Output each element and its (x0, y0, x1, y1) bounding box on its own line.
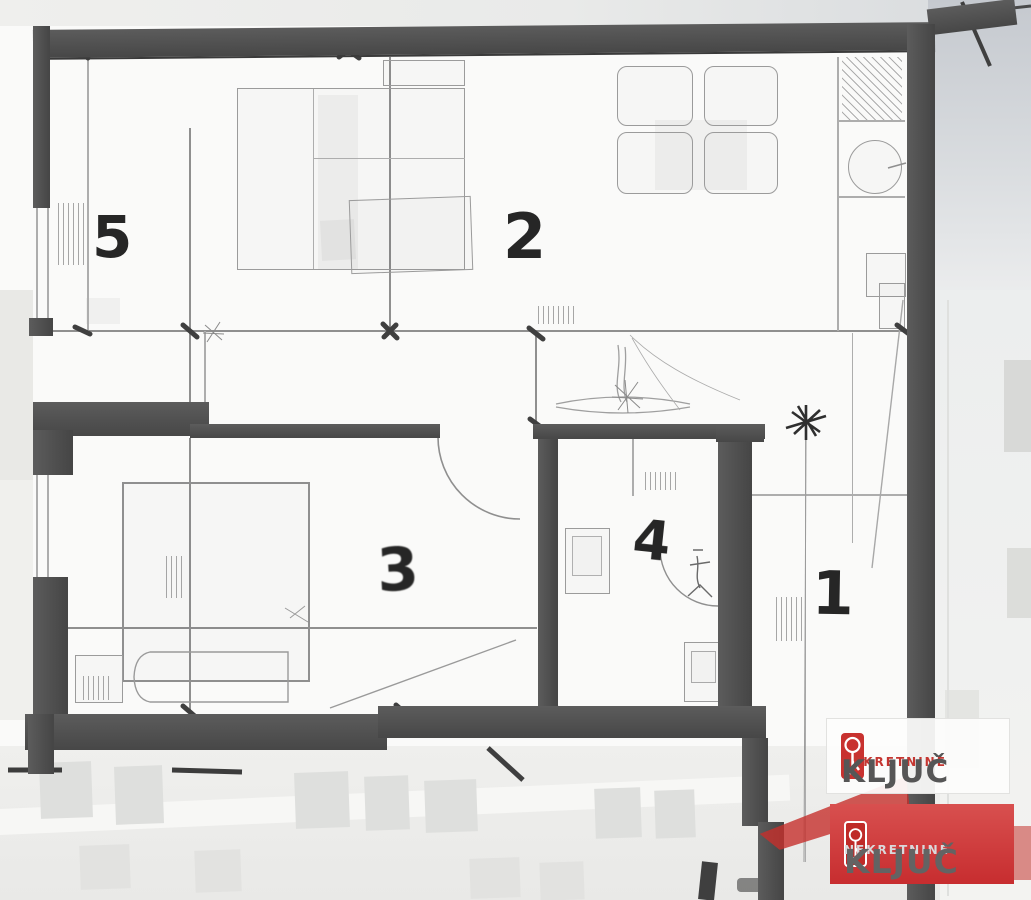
door-arc (438, 437, 520, 519)
wall-left-upper (33, 26, 50, 208)
wall-left-lower (33, 577, 68, 714)
wall-room4-right (718, 442, 752, 714)
figure-sketch (688, 550, 712, 597)
bathtub-outline (134, 652, 288, 702)
wall-entry-upper (742, 738, 768, 826)
room-number-3: 3 (375, 539, 420, 601)
brand-name: KLJUČ (841, 757, 949, 788)
wall-left-knot (29, 318, 53, 336)
diagonal-line (872, 300, 903, 568)
wall-room4-left (538, 439, 558, 715)
floor-plan-image: 5 2 3 4 1 NEKRETNINE KLJUČ NEKRETNINE KL… (0, 0, 1031, 900)
scratch-marks (203, 322, 224, 342)
wall-bottom-stub (28, 714, 54, 774)
diagonal-line (330, 640, 516, 708)
junction-knots (72, 42, 928, 720)
room-number-2: 2 (503, 206, 546, 268)
wall-left-step (33, 430, 73, 475)
wall-end-tick (488, 748, 523, 780)
wall-room4-corner (716, 424, 764, 442)
scratch-marks (285, 606, 308, 622)
wall-bottom-left (25, 714, 387, 750)
room-number-5: 5 (92, 208, 132, 266)
sink-tick (888, 163, 906, 168)
wall-bottom-right (378, 706, 766, 738)
wall-divider-room3 (190, 424, 440, 438)
red-streak (1012, 826, 1031, 880)
scratch-wisps (630, 335, 740, 410)
watermark-logo-primary: NEKRETNINE KLJUČ (826, 718, 1010, 794)
watermark-logo-secondary: NEKRETNINE KLJUČ (830, 804, 1014, 884)
plant-icon (786, 405, 826, 440)
brand-name: KLJUČ (844, 845, 959, 878)
room-number-1: 1 (811, 564, 854, 625)
plant-stem-line (804, 440, 806, 862)
room-number-4: 4 (630, 512, 673, 570)
